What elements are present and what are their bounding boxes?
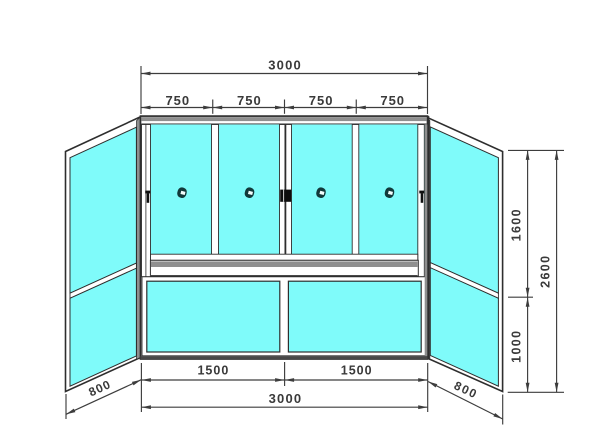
svg-text:2600: 2600 <box>539 254 553 287</box>
svg-text:750: 750 <box>237 93 262 108</box>
svg-text:1000: 1000 <box>509 329 523 362</box>
svg-text:1500: 1500 <box>341 364 373 378</box>
svg-text:3000: 3000 <box>269 391 303 406</box>
svg-text:1600: 1600 <box>509 208 523 241</box>
svg-text:750: 750 <box>380 93 405 108</box>
svg-text:1500: 1500 <box>197 364 229 378</box>
svg-text:750: 750 <box>165 93 190 108</box>
svg-text:750: 750 <box>309 93 334 108</box>
svg-text:3000: 3000 <box>268 58 302 73</box>
